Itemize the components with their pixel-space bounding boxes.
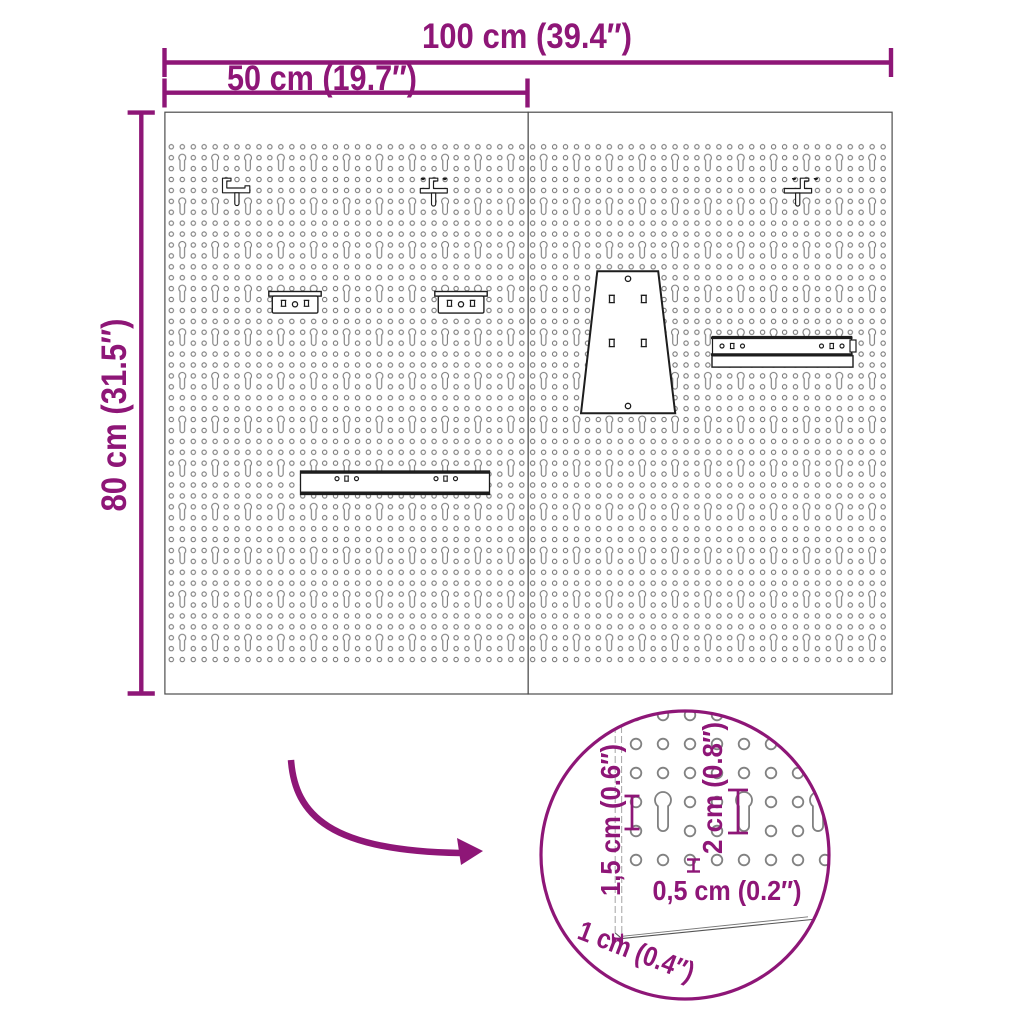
svg-text:80 cm (31.5″): 80 cm (31.5″) — [95, 319, 134, 512]
svg-text:0,5 cm (0.2″): 0,5 cm (0.2″) — [653, 875, 802, 906]
svg-text:50 cm (19.7″): 50 cm (19.7″) — [227, 59, 417, 98]
svg-text:1,5 cm (0.6″): 1,5 cm (0.6″) — [595, 744, 626, 896]
svg-text:100 cm (39.4″): 100 cm (39.4″) — [422, 17, 632, 56]
svg-text:2 cm (0.8″): 2 cm (0.8″) — [697, 722, 728, 854]
